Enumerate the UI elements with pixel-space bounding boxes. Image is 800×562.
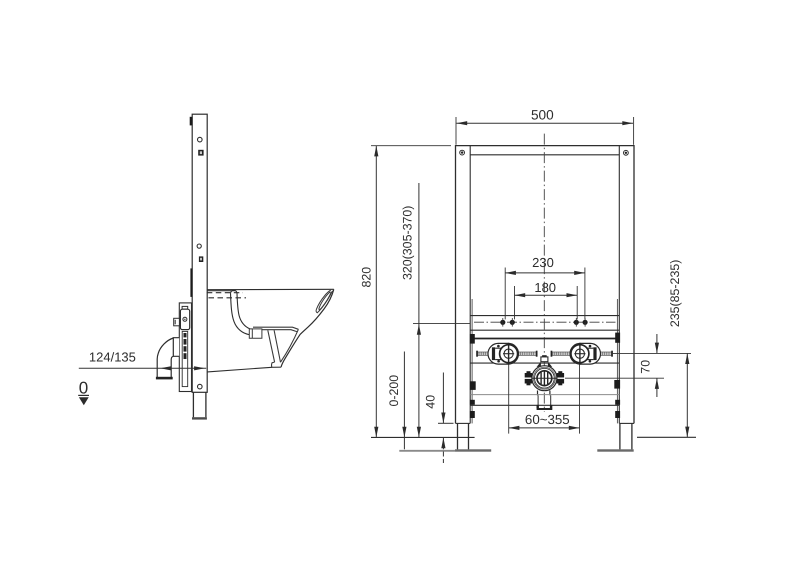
svg-text:235(85-235): 235(85-235) bbox=[668, 260, 682, 328]
svg-text:320(305-370): 320(305-370) bbox=[401, 206, 415, 280]
svg-text:230: 230 bbox=[532, 255, 554, 270]
svg-text:0-200: 0-200 bbox=[387, 375, 401, 407]
svg-text:500: 500 bbox=[531, 107, 554, 122]
svg-text:820: 820 bbox=[360, 267, 374, 288]
svg-text:70: 70 bbox=[639, 360, 653, 374]
svg-text:40: 40 bbox=[424, 395, 438, 409]
svg-text:0: 0 bbox=[79, 378, 88, 397]
svg-text:124/135: 124/135 bbox=[89, 349, 136, 364]
svg-text:60~355: 60~355 bbox=[525, 412, 570, 427]
svg-text:180: 180 bbox=[534, 280, 556, 295]
